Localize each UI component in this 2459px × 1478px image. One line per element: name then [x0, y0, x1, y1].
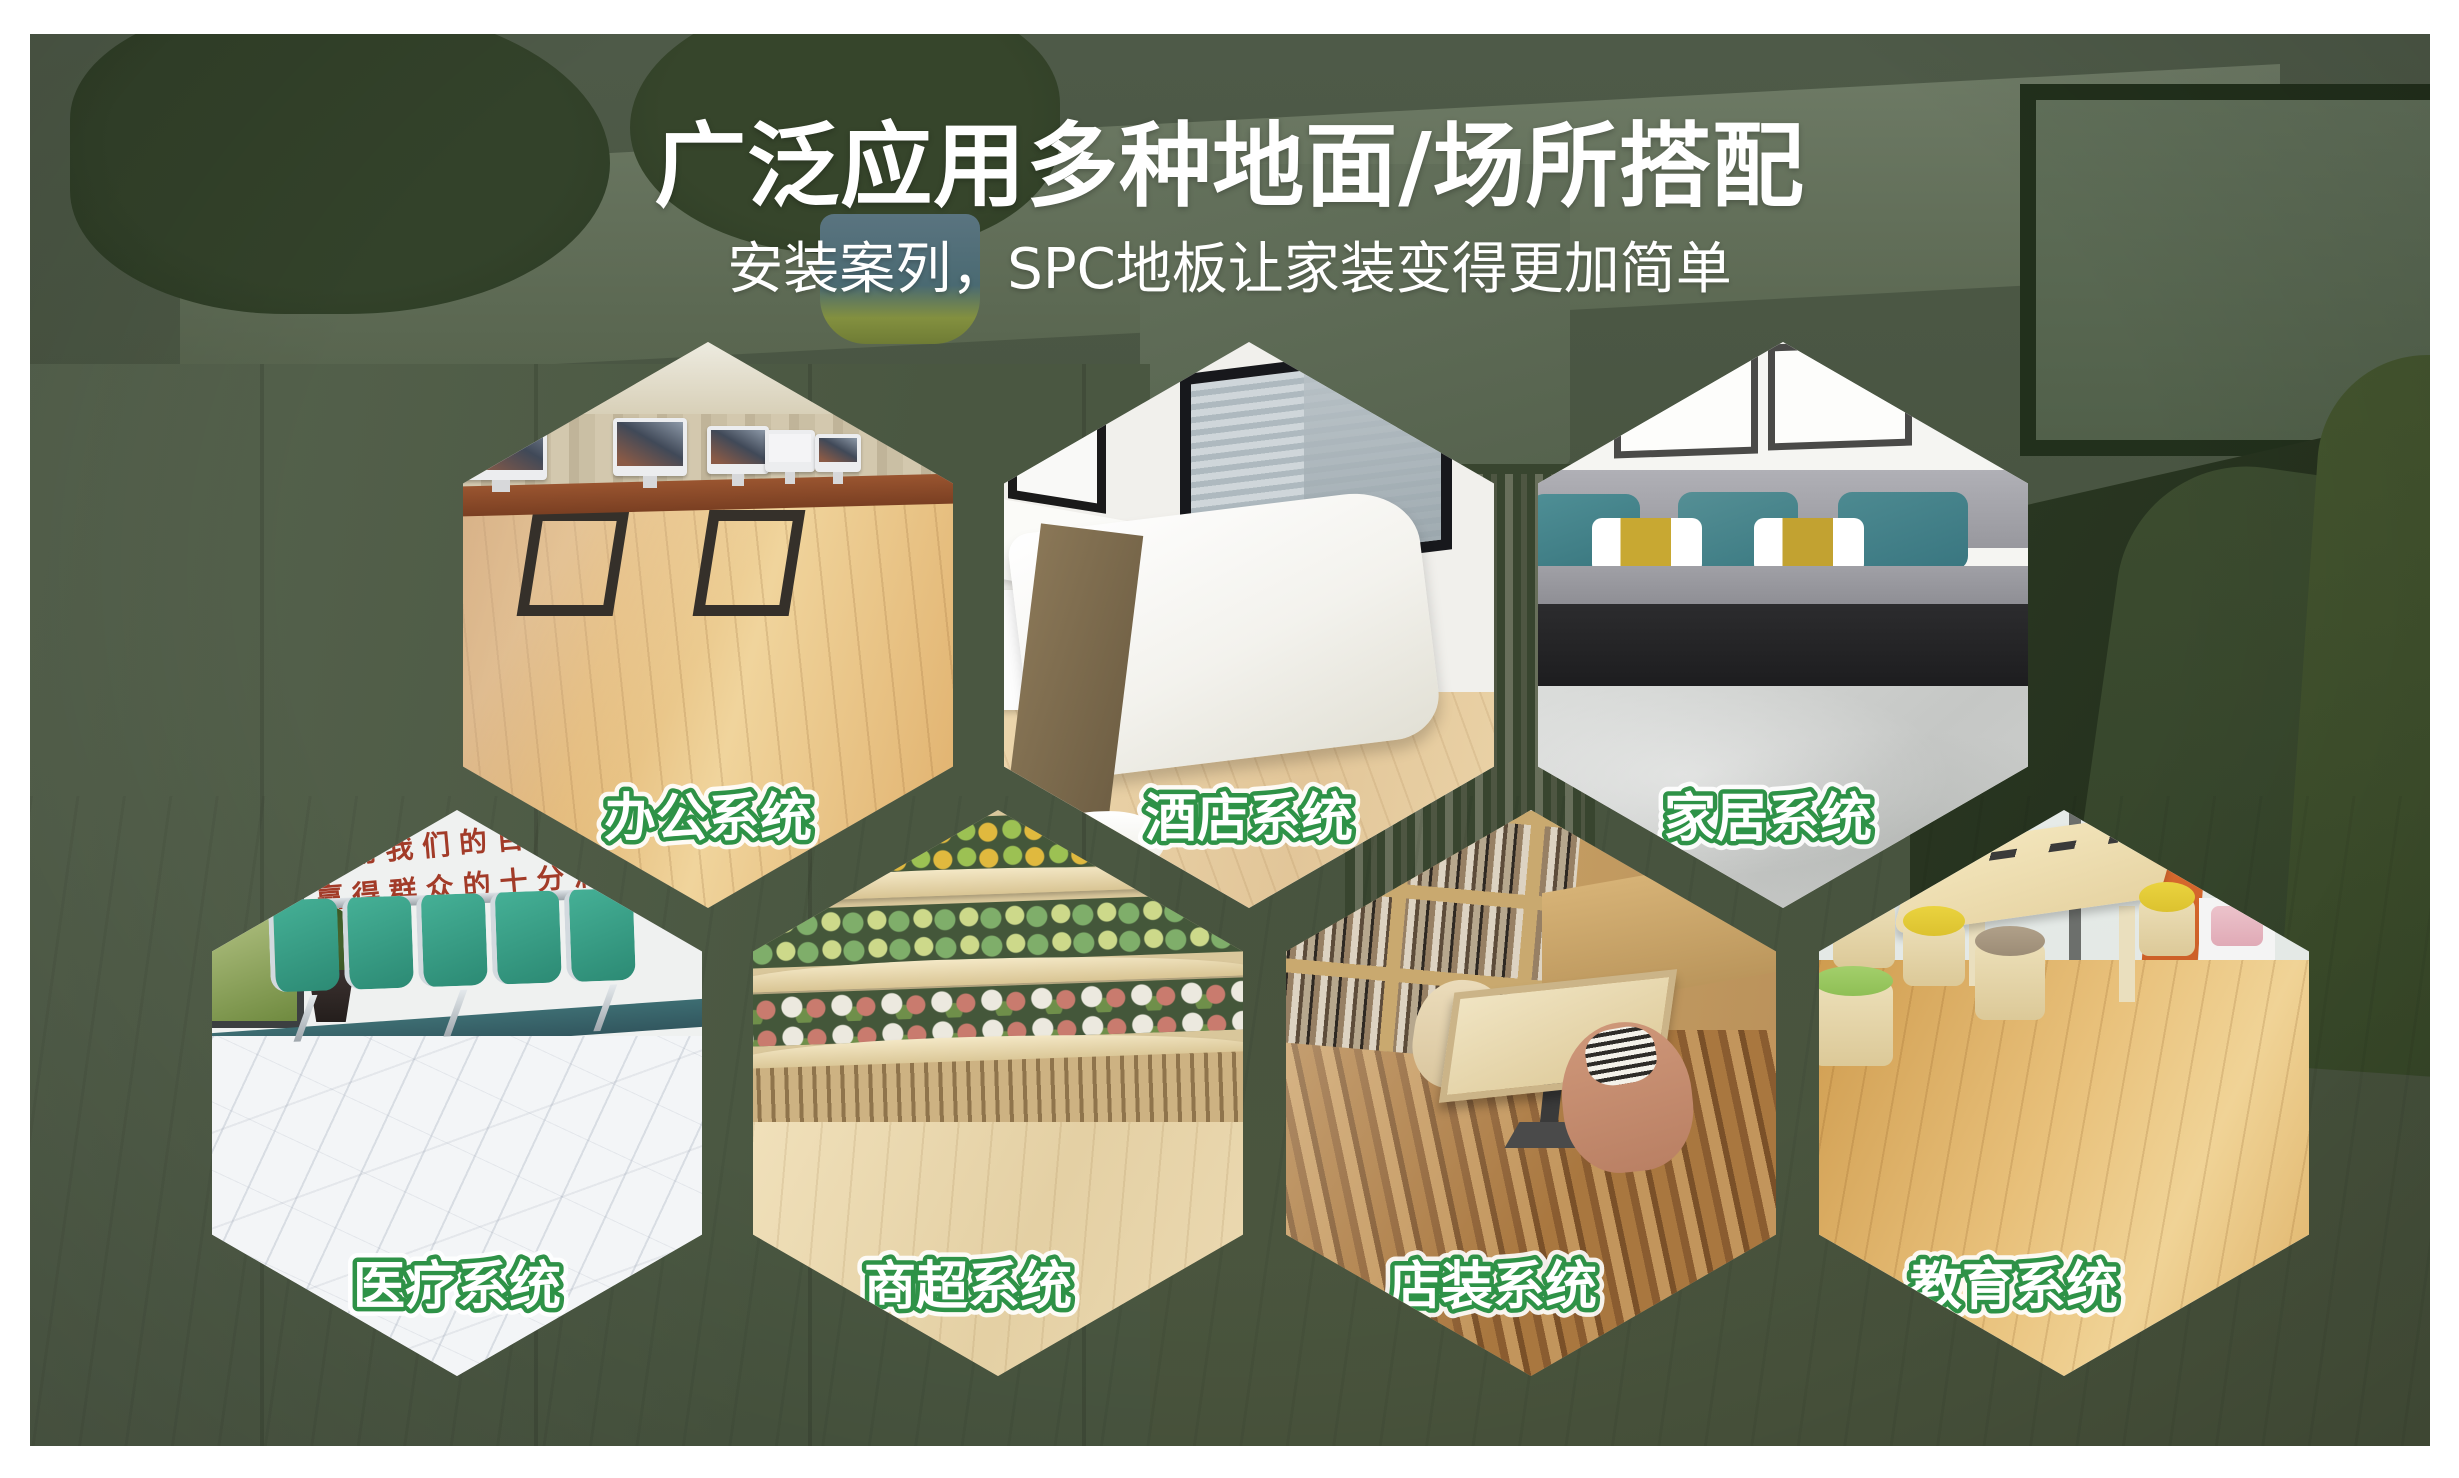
page-title: 广泛应用多种地面/场所搭配 — [0, 112, 2459, 222]
computer-monitor — [707, 426, 769, 474]
bench-seat — [416, 893, 488, 987]
page-subtitle: 安装案列，SPC地板让家装变得更加简单 — [0, 238, 2459, 302]
desk-leg — [517, 510, 630, 616]
svg-text:办公系统: 办公系统 — [604, 789, 812, 849]
svg-text:医疗系统: 医疗系统 — [353, 1257, 561, 1317]
round-stool-taupe — [1975, 942, 2045, 1020]
computer-monitor — [815, 434, 861, 472]
bench-seat — [342, 896, 414, 990]
computer-monitor — [765, 430, 815, 472]
waiting-bench — [268, 888, 644, 1031]
svg-text:酒店系统: 酒店系统 — [1145, 789, 1353, 849]
table-leg — [2119, 906, 2135, 1002]
svg-text:商超系统: 商超系统 — [864, 1257, 1072, 1317]
promo-banner: 广泛应用多种地面/场所搭配 安装案列，SPC地板让家装变得更加简单 办公系统 办… — [0, 0, 2459, 1478]
desk-leg — [693, 510, 806, 616]
svg-text:店装系统: 店装系统 — [1389, 1257, 1597, 1317]
round-stool-yellow — [2139, 898, 2195, 956]
round-stool-green — [1819, 982, 1893, 1066]
computer-monitor — [613, 418, 687, 476]
round-stool-yellow — [1903, 922, 1965, 986]
sofa-seat — [1538, 566, 2028, 606]
svg-text:家居系统: 家居系统 — [1664, 789, 1872, 849]
bed — [1006, 486, 1443, 784]
bench-seat — [490, 890, 562, 984]
sofa-base — [1538, 604, 2028, 686]
